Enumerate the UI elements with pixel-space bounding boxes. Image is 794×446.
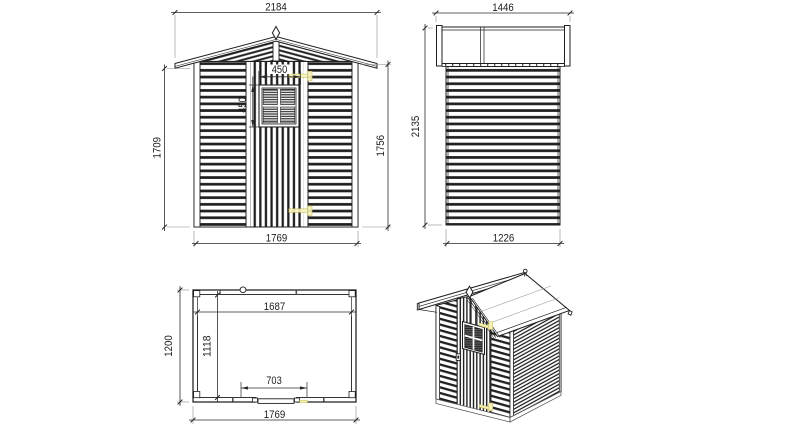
svg-text:1769: 1769 bbox=[266, 233, 288, 245]
svg-text:1769: 1769 bbox=[264, 409, 286, 421]
svg-text:2135: 2135 bbox=[410, 116, 422, 138]
svg-text:1709: 1709 bbox=[152, 137, 164, 159]
svg-text:1226: 1226 bbox=[493, 233, 515, 245]
svg-text:1200: 1200 bbox=[163, 335, 175, 357]
svg-text:2184: 2184 bbox=[265, 2, 287, 14]
svg-text:703: 703 bbox=[266, 375, 282, 387]
svg-text:450: 450 bbox=[237, 97, 249, 113]
svg-text:450: 450 bbox=[272, 64, 288, 76]
svg-text:1118: 1118 bbox=[202, 336, 214, 358]
svg-text:1756: 1756 bbox=[375, 135, 387, 157]
svg-text:1446: 1446 bbox=[492, 2, 514, 14]
svg-text:1687: 1687 bbox=[264, 301, 286, 313]
